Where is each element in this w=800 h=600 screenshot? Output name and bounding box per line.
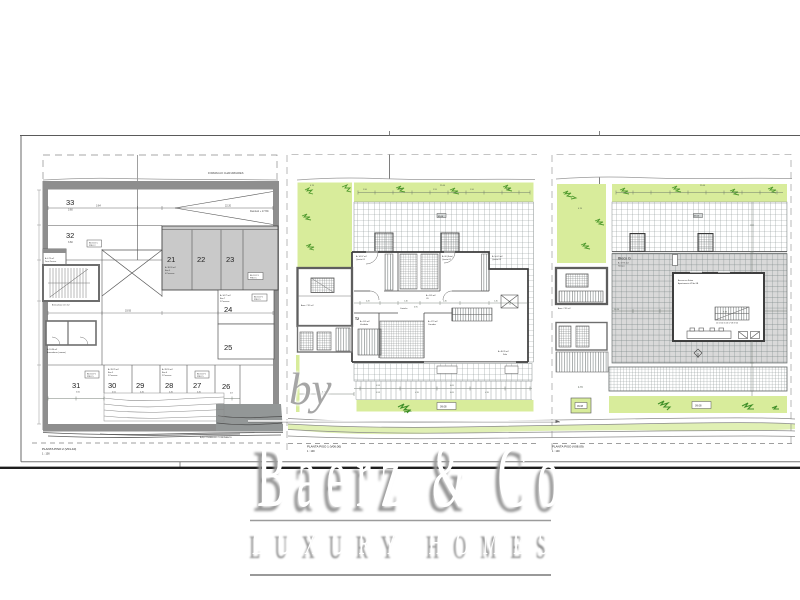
- svg-text:32: 32: [66, 231, 74, 240]
- svg-text:T2: T2: [355, 317, 359, 321]
- svg-text:BLOCO V: BLOCO V: [250, 275, 260, 277]
- svg-text:09.08: 09.08: [695, 403, 702, 407]
- svg-text:6.05: 6.05: [450, 392, 455, 394]
- svg-text:A: 28.55 m2: A: 28.55 m2: [162, 368, 174, 371]
- svg-text:A: 4.05 m2: A: 4.05 m2: [426, 294, 437, 297]
- svg-text:22.20: 22.20: [225, 205, 232, 208]
- svg-text:A: 38.20 m2: A: 38.20 m2: [165, 266, 177, 269]
- svg-text:4.35: 4.35: [415, 392, 420, 394]
- svg-text:31: 31: [72, 381, 80, 390]
- svg-text:A: 34.75 m2: A: 34.75 m2: [220, 294, 232, 297]
- svg-text:2.45: 2.45: [443, 301, 447, 303]
- svg-text:5.93: 5.93: [376, 392, 381, 394]
- svg-text:Bloco G: Bloco G: [618, 257, 631, 261]
- svg-text:0.8: 0.8: [230, 393, 234, 395]
- svg-text:0.95: 0.95: [414, 307, 418, 309]
- svg-text:33.93: 33.93: [125, 310, 132, 313]
- svg-text:21: 21: [167, 255, 175, 264]
- svg-text:23: 23: [226, 255, 234, 264]
- svg-text:26: 26: [222, 382, 230, 391]
- svg-text:1.40: 1.40: [404, 301, 408, 303]
- svg-text:05.06: 05.06: [438, 216, 444, 218]
- svg-text:Terraco: Terraco: [618, 266, 626, 268]
- svg-text:Corredor: Corredor: [428, 324, 436, 326]
- svg-text:4.70: 4.70: [578, 386, 583, 389]
- svg-text:I.S.: I.S.: [426, 298, 429, 300]
- svg-text:Antecamara 5.15 m2: Antecamara 5.15 m2: [52, 304, 70, 307]
- svg-text:BLOCO V: BLOCO V: [254, 297, 264, 299]
- svg-text:Apartamento V8 do 9B: Apartamento V8 do 9B: [678, 282, 699, 285]
- svg-text:29.60: 29.60: [440, 185, 446, 187]
- svg-text:27: 27: [193, 381, 201, 390]
- svg-text:BLOCO V: BLOCO V: [197, 374, 207, 376]
- svg-text:1 : 100: 1 : 100: [42, 453, 50, 456]
- svg-text:BLOCO V: BLOCO V: [87, 374, 97, 376]
- svg-text:12 13 14 15 16 17 18 19 20: 12 13 14 15 16 17 18 19 20: [716, 323, 738, 325]
- svg-text:Quarto 03: Quarto 03: [492, 258, 502, 261]
- svg-text:25: 25: [224, 343, 232, 352]
- svg-text:Cozinha: Cozinha: [400, 308, 408, 310]
- svg-text:10.10: 10.10: [614, 309, 620, 311]
- svg-text:PISO 5: PISO 5: [250, 278, 257, 280]
- svg-text:A: 06 (Soto): A: 06 (Soto): [442, 255, 453, 258]
- svg-text:4 Pessoas: 4 Pessoas: [165, 273, 174, 275]
- svg-text:Quarto 02: Quarto 02: [442, 258, 452, 261]
- svg-text:A: 4.05 m2: A: 4.05 m2: [360, 320, 371, 323]
- svg-text:Sala: Sala: [503, 354, 508, 356]
- svg-text:22: 22: [197, 255, 205, 264]
- svg-text:24: 24: [224, 305, 232, 314]
- svg-text:PISO 5: PISO 5: [87, 376, 94, 378]
- svg-text:A,B,C TERRENO CONFINANTE: A,B,C TERRENO CONFINANTE: [200, 436, 232, 439]
- svg-text:FORMACAO CHAFURDARES: FORMACAO CHAFURDARES: [208, 171, 244, 175]
- svg-text:PISO 5: PISO 5: [254, 299, 261, 301]
- svg-text:A: 10.36 m2: A: 10.36 m2: [47, 348, 57, 351]
- svg-text:29: 29: [136, 381, 144, 390]
- svg-text:29.60: 29.60: [700, 185, 706, 187]
- svg-text:A: 4.75 m2: A: 4.75 m2: [45, 257, 54, 260]
- svg-text:Box 9: Box 9: [165, 270, 171, 272]
- svg-text:2 Pessoas: 2 Pessoas: [108, 375, 117, 377]
- svg-text:A: 37.91 m2: A: 37.91 m2: [618, 262, 630, 265]
- svg-text:05.06: 05.06: [694, 216, 700, 218]
- svg-text:2 Pessoas: 2 Pessoas: [162, 375, 171, 377]
- svg-text:2 Pessoas: 2 Pessoas: [220, 301, 229, 303]
- svg-text:A: 46.35 m2: A: 46.35 m2: [498, 350, 510, 353]
- svg-text:Zona Tecnica: Zona Tecnica: [45, 261, 57, 263]
- svg-text:Area: 7.32 m2: Area: 7.32 m2: [558, 307, 571, 310]
- svg-text:Acesso ao Sotao: Acesso ao Sotao: [678, 279, 694, 282]
- svg-text:30: 30: [108, 381, 116, 390]
- svg-text:09.08: 09.08: [577, 405, 584, 408]
- svg-text:3.60: 3.60: [68, 209, 73, 212]
- svg-text:3.64: 3.64: [96, 205, 101, 208]
- svg-text:Area: 7.32 m2: Area: 7.32 m2: [301, 304, 314, 307]
- svg-text:PISO 5: PISO 5: [197, 376, 204, 378]
- svg-text:33: 33: [66, 198, 74, 207]
- svg-text:6.05: 6.05: [450, 385, 455, 387]
- svg-text:A: 9x1.9 m2: A: 9x1.9 m2: [492, 255, 504, 258]
- svg-text:28: 28: [165, 381, 173, 390]
- svg-text:PISO 2: PISO 2: [89, 245, 96, 247]
- svg-text:BLOCO C: BLOCO C: [89, 242, 99, 244]
- svg-text:5.93: 5.93: [376, 385, 381, 387]
- svg-text:4.35: 4.35: [485, 392, 490, 394]
- svg-text:09.08: 09.08: [440, 404, 447, 408]
- svg-text:1.45: 1.45: [494, 301, 498, 303]
- svg-text:Vestibulo: Vestibulo: [360, 323, 369, 326]
- svg-text:A: 14.07 m2: A: 14.07 m2: [356, 255, 368, 258]
- svg-text:PLANTA PISO 2 (V01-10): PLANTA PISO 2 (V01-10): [42, 447, 76, 451]
- svg-text:Box 6: Box 6: [162, 372, 168, 374]
- svg-text:Quarto 01: Quarto 01: [356, 258, 366, 261]
- svg-text:5.60: 5.60: [76, 392, 81, 394]
- svg-text:Box 7: Box 7: [220, 298, 226, 300]
- svg-text:3.60: 3.60: [68, 241, 73, 244]
- svg-text:A: 28.25 m2: A: 28.25 m2: [108, 368, 120, 371]
- svg-text:Arrecadacao (comum): Arrecadacao (comum): [47, 351, 66, 354]
- svg-text:Desnivel + 17.6%: Desnivel + 17.6%: [250, 210, 270, 213]
- svg-text:4.20: 4.20: [366, 301, 370, 303]
- svg-text:Box 5: Box 5: [108, 372, 114, 374]
- svg-text:A: 4.73 m2: A: 4.73 m2: [428, 320, 439, 323]
